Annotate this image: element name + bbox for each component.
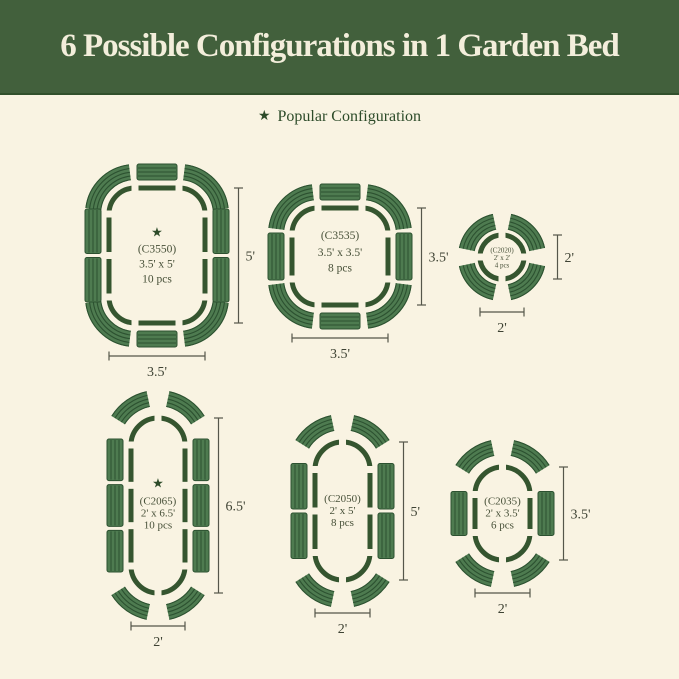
config-pieces-label: 10 pcs <box>144 520 172 532</box>
popular-star-icon: ★ <box>151 226 163 241</box>
outline-joint-gap <box>499 232 506 239</box>
outline-joint-gap <box>477 254 484 261</box>
dimension-label: 3.5' <box>429 251 449 266</box>
config-pieces-label: 8 pcs <box>328 263 352 275</box>
outline-joint-gap <box>312 549 319 556</box>
dimension-label: 6.5' <box>226 500 246 515</box>
config-c3550: 5'3.5'★(C3550)3.5' x 5'10 pcs <box>85 164 255 380</box>
outline-joint-gap <box>472 529 479 536</box>
outline-joint-gap <box>202 252 209 259</box>
outline-joint-gap <box>182 482 189 489</box>
outline-joint-gap <box>182 442 189 449</box>
outline-joint-gap <box>499 464 506 471</box>
config-code-label: (C3550) <box>138 244 177 256</box>
outline-joint-gap <box>155 415 162 422</box>
dimensions: 3.5'2' <box>475 467 591 617</box>
outline-joint-gap <box>312 508 319 515</box>
outline-joint-gap <box>385 276 392 283</box>
config-size-label: 3.5' x 5' <box>139 259 175 271</box>
outline-joint-gap <box>128 482 135 489</box>
outline-joint-gap <box>521 254 528 261</box>
outline-joint-gap <box>289 231 296 238</box>
dimension-label: 2' <box>338 622 348 637</box>
outline-joint-gap <box>176 320 183 327</box>
dimensions: 3.5'3.5' <box>292 208 449 362</box>
dimension-label: 3.5' <box>330 347 350 362</box>
outline-joint-gap <box>472 491 479 498</box>
outline-joint-gap <box>289 276 296 283</box>
configurations-diagram: 5'3.5'★(C3550)3.5' x 5'10 pcs3.5'3.5'(C3… <box>0 0 679 679</box>
outline-joint-gap <box>128 563 135 570</box>
config-code-label: (C2035) <box>484 496 521 508</box>
outline-joint-gap <box>202 211 209 218</box>
config-size-label: 2' x 5' <box>330 505 356 517</box>
popular-star-icon: ★ <box>152 477 164 492</box>
dimensions: 5'3.5' <box>109 188 255 380</box>
config-code-label: (C3535) <box>321 230 360 242</box>
dimensions: 6.5'2' <box>131 418 246 650</box>
dimension-label: 2' <box>497 321 507 336</box>
dimension-label: 5' <box>246 250 256 265</box>
outline-joint-gap <box>128 522 135 529</box>
outline-joint-gap <box>367 466 374 473</box>
outline-joint-gap <box>499 276 506 283</box>
config-pieces-label: 8 pcs <box>331 517 354 529</box>
outline-joint-gap <box>367 508 374 515</box>
outline-joint-gap <box>339 439 346 446</box>
outline-joint-gap <box>128 442 135 449</box>
outline-joint-gap <box>315 205 322 212</box>
outline-joint-gap <box>182 522 189 529</box>
config-c2065: 6.5'2'★(C2065)2' x 6.5'10 pcs <box>107 392 246 650</box>
dimension-label: 3.5' <box>147 365 167 380</box>
outline-joint-gap <box>359 205 366 212</box>
outline-joint-gap <box>527 491 534 498</box>
dimension-label: 3.5' <box>571 508 591 523</box>
dimension-label: 5' <box>411 505 421 520</box>
config-pieces-label: 10 pcs <box>142 274 172 286</box>
outline-joint-gap <box>315 302 322 309</box>
outline-joint-gap <box>359 302 366 309</box>
config-pieces-label: 6 pcs <box>491 520 514 532</box>
outline-joint-gap <box>385 231 392 238</box>
outline-joint-gap <box>106 252 113 259</box>
config-size-label: 2' x 6.5' <box>141 508 175 520</box>
outline-joint-gap <box>132 320 139 327</box>
outline-joint-gap <box>132 185 139 192</box>
outline-joint-gap <box>182 563 189 570</box>
outline-joint-gap <box>499 557 506 564</box>
outline-joint-gap <box>202 294 209 301</box>
outline-joint-gap <box>155 590 162 597</box>
config-pieces-label: 4 pcs <box>495 262 510 270</box>
outline-joint-gap <box>527 529 534 536</box>
config-code-label: (C2065) <box>140 496 177 508</box>
infographic-page: 6 Possible Configurations in 1 Garden Be… <box>0 0 679 679</box>
dimension-label: 2' <box>565 251 575 266</box>
config-code-label: (C2050) <box>324 493 361 505</box>
outline-joint-gap <box>106 211 113 218</box>
outline-joint-gap <box>339 577 346 584</box>
config-c2050: 5'2'(C2050)2' x 5'8 pcs <box>291 416 420 637</box>
dimension-label: 2' <box>153 635 163 650</box>
config-size-label: 2' x 3.5' <box>485 508 519 520</box>
dimension-label: 2' <box>498 602 508 617</box>
outline-joint-gap <box>176 185 183 192</box>
config-c2020: 2'2'(C2020)2' x 2'4 pcs <box>459 214 574 336</box>
config-c3535: 3.5'3.5'(C3535)3.5' x 3.5'8 pcs <box>268 184 449 362</box>
bed-outline <box>109 188 205 323</box>
config-c2035: 3.5'2'(C2035)2' x 3.5'6 pcs <box>451 441 591 617</box>
config-size-label: 3.5' x 3.5' <box>318 247 362 259</box>
outline-joint-gap <box>367 549 374 556</box>
outline-joint-gap <box>106 294 113 301</box>
outline-joint-gap <box>312 466 319 473</box>
